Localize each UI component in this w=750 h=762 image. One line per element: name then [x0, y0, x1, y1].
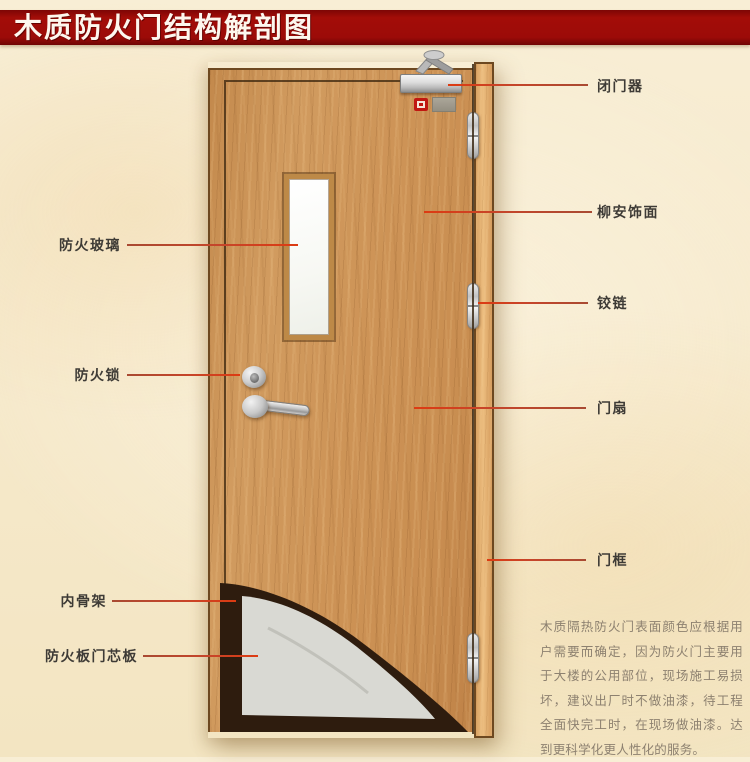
callout-line-door-closer [448, 84, 588, 86]
label-core-board: 防火板门芯板 [45, 647, 138, 665]
grey-nameplate [432, 97, 456, 112]
callout-line-fire-lock [127, 374, 240, 376]
leaf-frame-gap [472, 64, 474, 734]
callout-line-hinge [478, 302, 588, 304]
callout-line-inner-skeleton [112, 600, 236, 602]
callout-line-core-board [143, 655, 258, 657]
cutaway-section [208, 68, 473, 732]
label-door-closer: 闭门器 [597, 77, 644, 95]
callout-line-door-frame [487, 559, 586, 561]
description-text: 木质隔热防火门表面颜色应根据用户需要而确定，因为防火门主要用于大楼的公用部位，现… [540, 615, 743, 762]
callout-line-fire-glass [127, 244, 298, 246]
fire-door-illustration [208, 62, 494, 738]
core-board-shape [242, 596, 435, 719]
label-fire-lock: 防火锁 [75, 366, 122, 384]
infographic-canvas: { "title": "木质防火门结构解剖图", "labels": { "ri… [0, 0, 750, 757]
label-veneer: 柳安饰面 [597, 203, 659, 221]
door-closer-arm [396, 50, 466, 76]
label-door-leaf: 门扇 [597, 399, 628, 417]
title-banner: 木质防火门结构解剖图 [0, 10, 750, 45]
callout-line-veneer [424, 211, 592, 213]
page-title: 木质防火门结构解剖图 [14, 11, 314, 45]
label-inner-skeleton: 内骨架 [61, 592, 108, 610]
red-label-badge [414, 98, 428, 111]
label-door-frame: 门框 [597, 551, 628, 569]
label-fire-glass: 防火玻璃 [59, 236, 121, 254]
callout-line-door-leaf [414, 407, 586, 409]
label-hinge: 铰链 [597, 294, 628, 312]
